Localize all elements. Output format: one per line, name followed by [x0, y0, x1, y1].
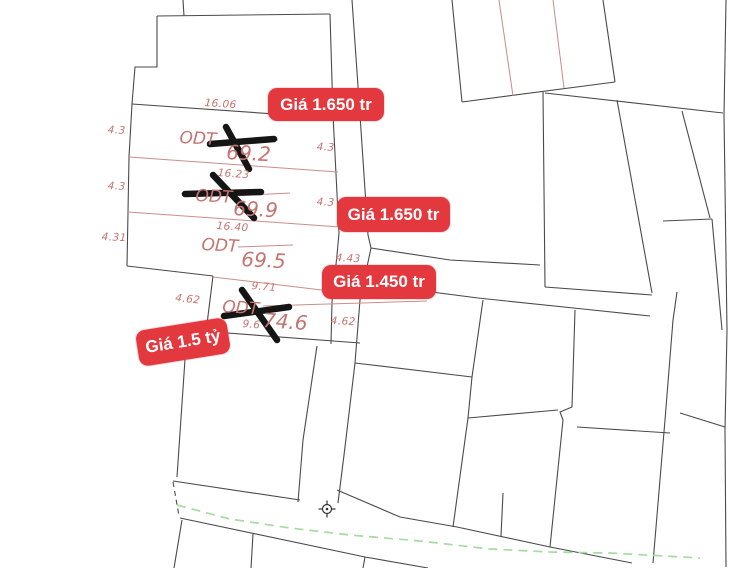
parcel-zone-label: ODT	[179, 128, 217, 150]
dimension-label: 16.40	[216, 220, 249, 234]
cadastral-map: 16.064.34.316.234.34.316.404.314.439.714…	[0, 0, 730, 568]
dimension-label: 4.3	[316, 141, 335, 154]
dimension-label: 4.62	[175, 292, 201, 307]
price-badge: Giá 1.450 tr	[322, 265, 436, 299]
price-badge: Giá 1.650 tr	[337, 197, 450, 232]
dimension-label: 16.23	[217, 167, 250, 181]
dimension-label: 4.3	[316, 196, 335, 209]
parcel-area-label: 69.2	[226, 140, 272, 166]
dimension-label: 4.43	[335, 252, 361, 265]
parcel-area-label: 69.5	[241, 247, 287, 273]
dimension-label: 4.3	[107, 124, 126, 137]
dimension-label: 4.31	[101, 231, 127, 244]
dimension-label: 4.62	[330, 315, 356, 328]
parcel-area-label: 69.9	[233, 196, 279, 222]
parcel-area-label: 74.6	[262, 308, 308, 335]
dimension-label: 9.71	[251, 280, 277, 294]
dimension-label: 9.6	[242, 318, 261, 332]
parcel-zone-label: ODT	[222, 297, 260, 320]
price-badge: Giá 1.5 tỷ	[135, 317, 231, 367]
annotation-layer: 16.064.34.316.234.34.316.404.314.439.714…	[0, 0, 730, 568]
parcel-zone-label: ODT	[195, 186, 233, 208]
price-badge: Giá 1.650 tr	[268, 88, 384, 121]
dimension-label: 4.3	[107, 180, 126, 193]
dimension-label: 16.06	[204, 97, 237, 111]
parcel-zone-label: ODT	[201, 235, 239, 257]
